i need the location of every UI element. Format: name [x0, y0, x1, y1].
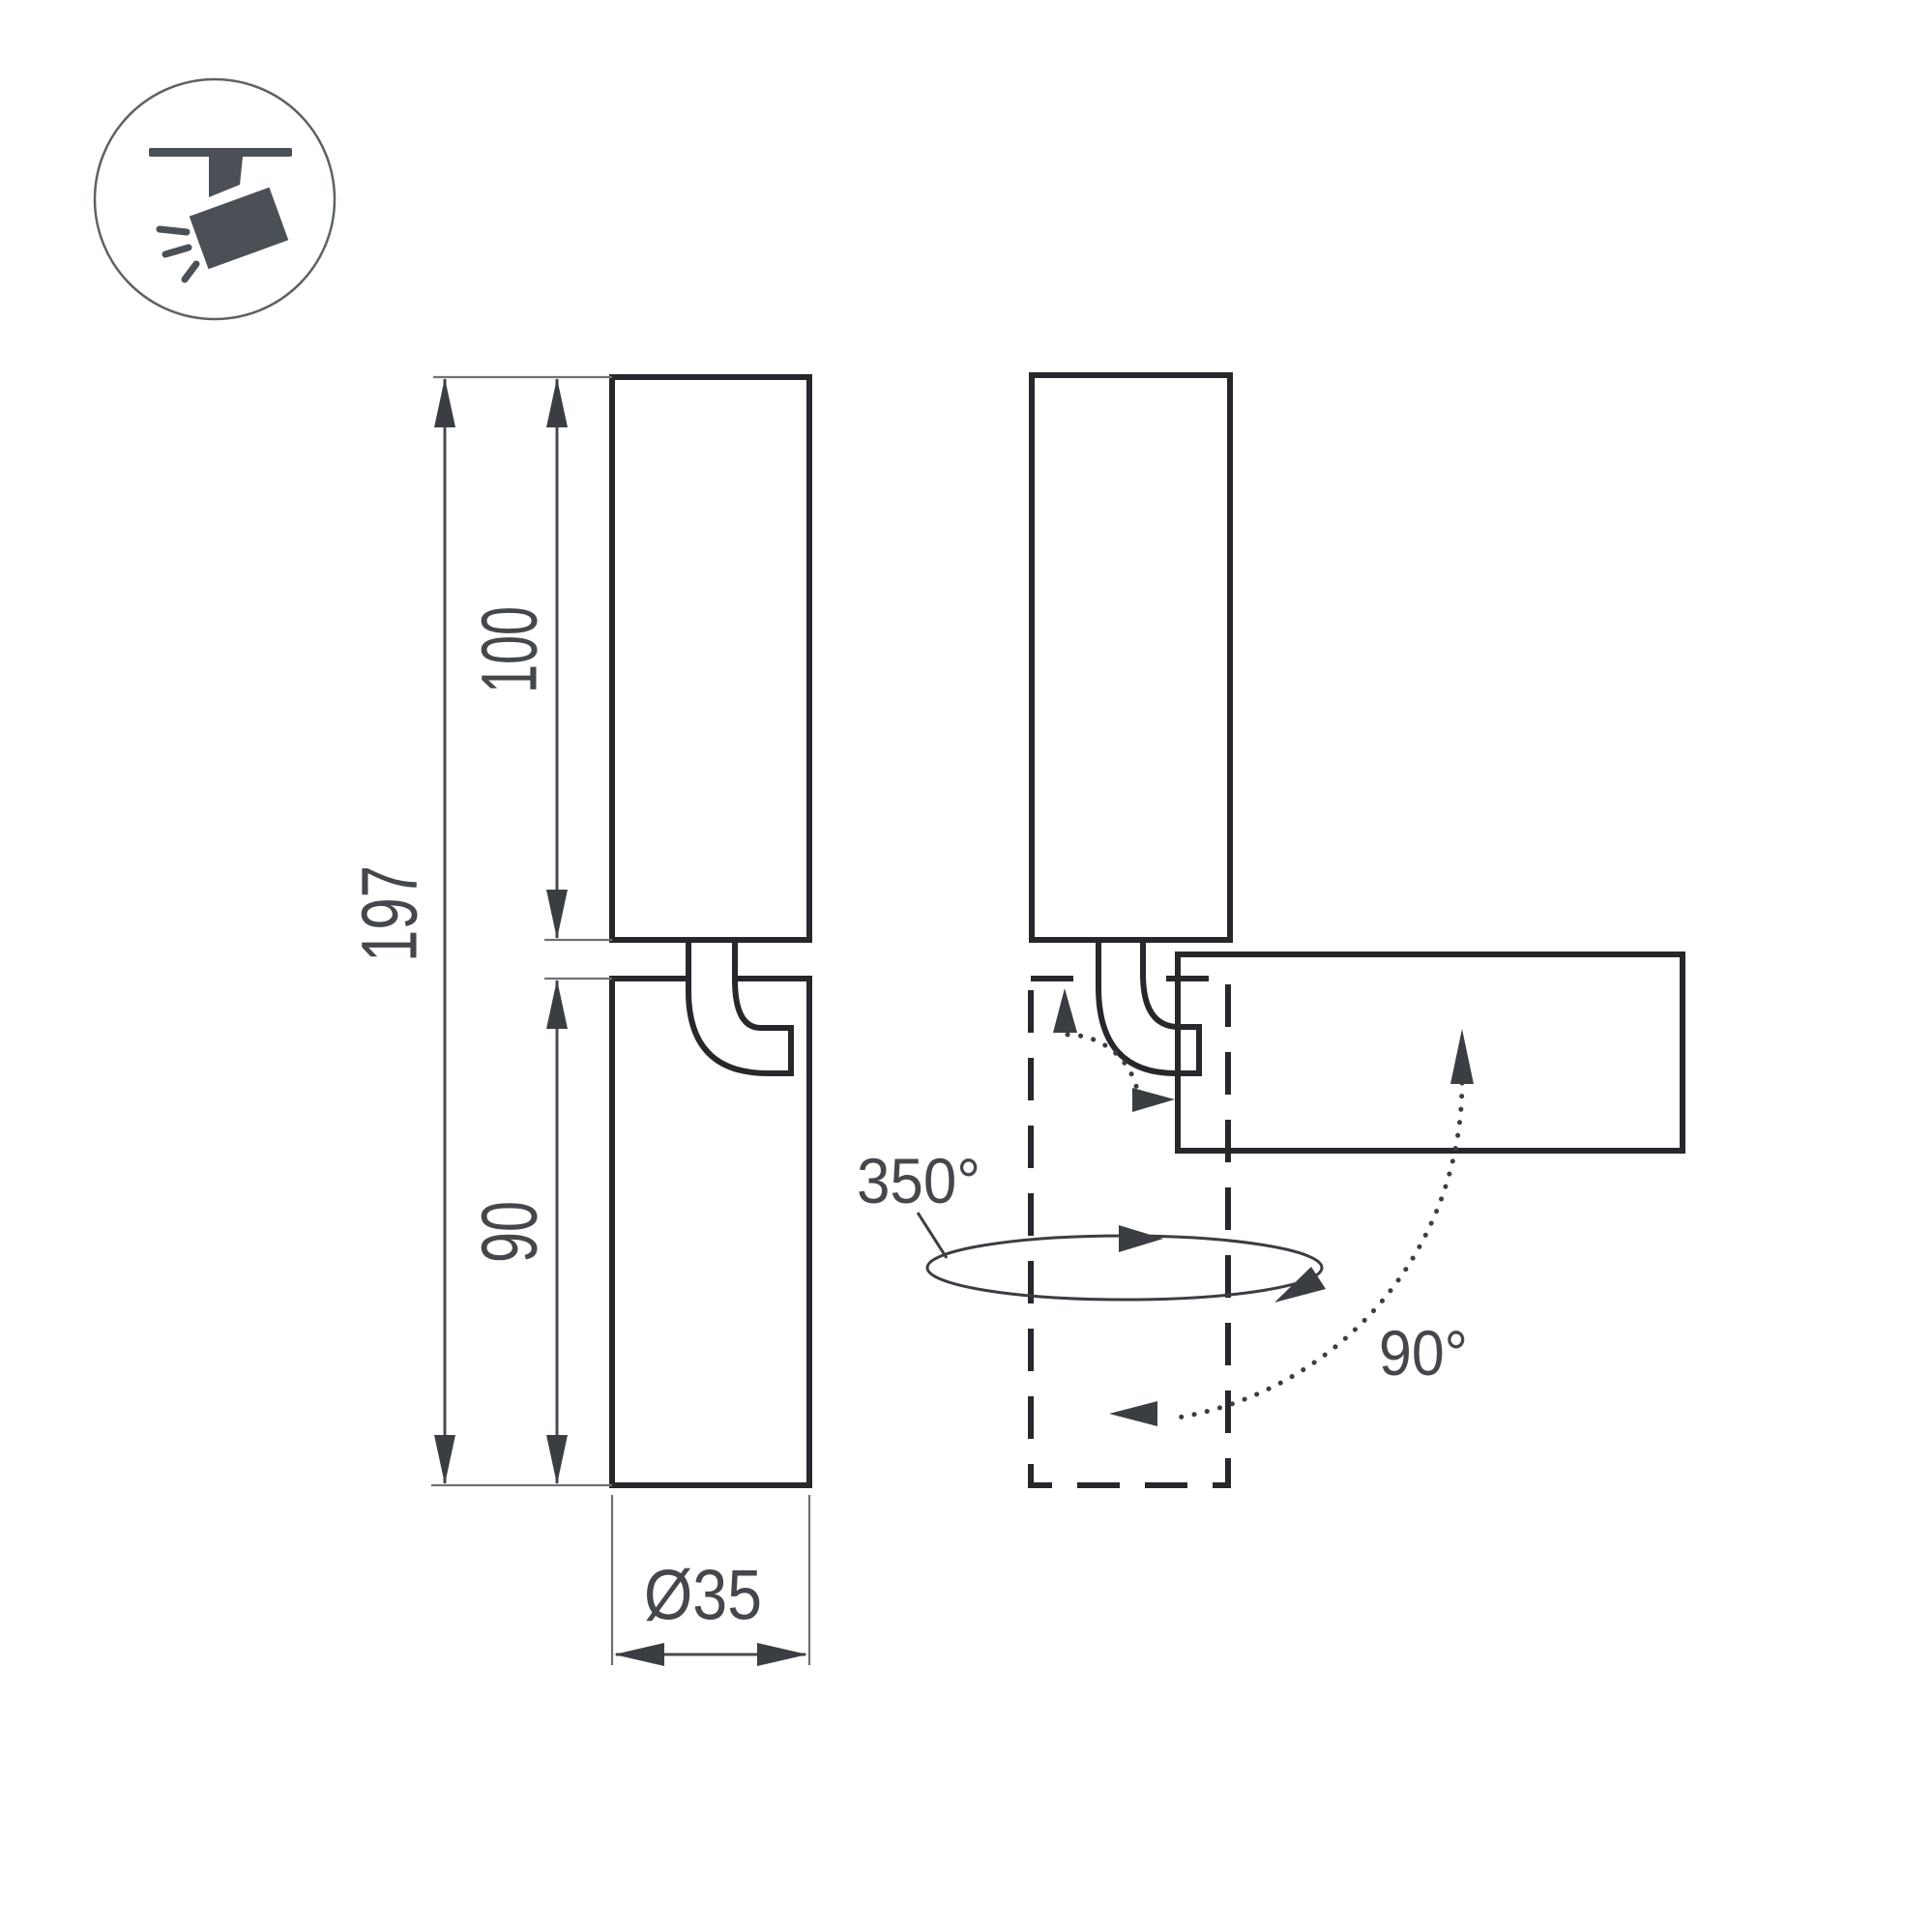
- arrowhead-down: [546, 1435, 568, 1484]
- arrowhead-up: [546, 378, 568, 427]
- dimension-label-diameter: Ø35: [644, 1557, 762, 1635]
- front-view: [612, 377, 809, 1485]
- rotated-view: 90° 350°: [857, 375, 1683, 1485]
- dimension-label-total-height: 197: [346, 865, 434, 962]
- technical-drawing: 197 100 90 Ø35: [0, 0, 1932, 1932]
- arrowhead-up: [546, 980, 568, 1029]
- arrowhead-down: [434, 1435, 455, 1484]
- light-ray: [160, 229, 187, 232]
- arrowhead-down: [546, 890, 568, 939]
- tilt-angle-label: 90°: [1379, 1317, 1468, 1389]
- arrowhead-up: [434, 378, 455, 427]
- arrowhead-left: [614, 1643, 664, 1666]
- dimension-label-head: 90: [466, 1201, 554, 1263]
- arrowhead-up: [1053, 988, 1077, 1033]
- arrowhead-right: [757, 1643, 807, 1666]
- arrowhead-left: [1109, 1401, 1157, 1426]
- dimension-head: 90: [466, 980, 569, 1484]
- badge-circle: [95, 79, 335, 319]
- product-type-badge: [95, 79, 335, 319]
- upper-body: [612, 377, 809, 940]
- dimension-total-height: 197: [346, 378, 456, 1484]
- drawing-canvas: 197 100 90 Ø35: [0, 0, 1932, 1932]
- swivel-angle-label: 350°: [857, 1145, 981, 1216]
- head-rotated-horizontal: [1178, 954, 1683, 1151]
- dimension-label-upper-body: 100: [466, 606, 554, 693]
- dimension-upper-body: 100: [466, 378, 569, 939]
- arrowhead-loop-end: [1274, 1267, 1326, 1303]
- track-bar: [149, 148, 292, 157]
- upper-body: [1032, 375, 1230, 940]
- leader-line: [918, 1213, 947, 1258]
- dimension-diameter: Ø35: [614, 1557, 807, 1667]
- swivel-indicator: 350°: [857, 1145, 1326, 1303]
- arrowhead-right: [1119, 1225, 1163, 1252]
- arrowhead-right: [1132, 1088, 1175, 1112]
